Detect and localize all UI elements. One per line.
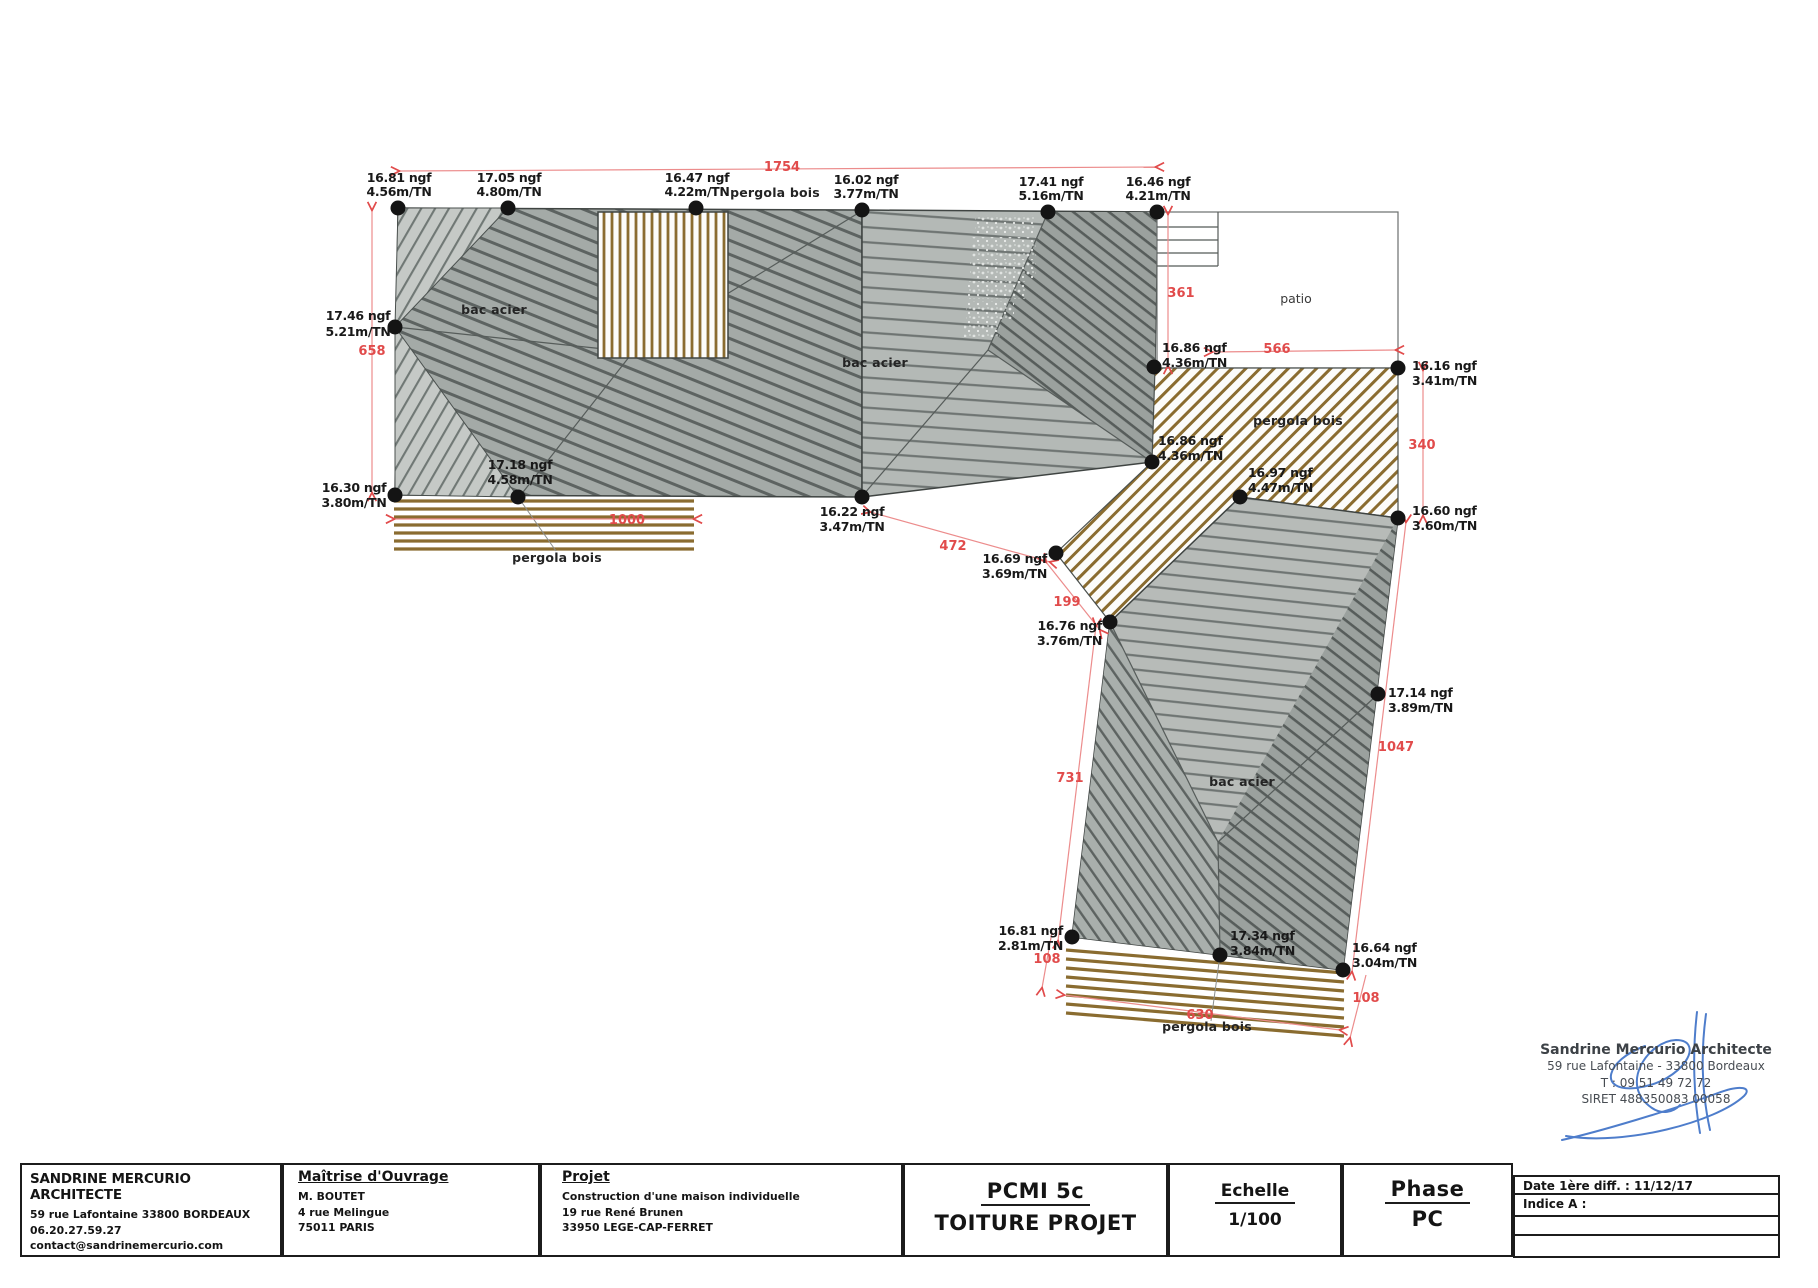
svg-text:16.60 ngf: 16.60 ngf: [1412, 503, 1477, 518]
dim-108-left: 108: [1033, 952, 1060, 967]
svg-text:16.69 ngf: 16.69 ngf: [983, 551, 1048, 566]
stamp-siret: SIRET 488350083 00058: [1522, 1091, 1790, 1108]
svg-text:4.47m/TN: 4.47m/TN: [1248, 480, 1313, 495]
svg-text:16.86 ngf: 16.86 ngf: [1158, 433, 1223, 448]
phase-value: PC: [1344, 1207, 1511, 1231]
svg-text:4.56m/TN: 4.56m/TN: [366, 184, 431, 199]
titleblock-echelle-cell: Echelle 1/100: [1168, 1163, 1342, 1257]
pergola-top-inset: [598, 212, 728, 358]
echelle-value: 1/100: [1170, 1210, 1340, 1230]
elevation-label: 16.30 ngf3.80m/TN: [321, 480, 387, 510]
elevation-label: 16.22 ngf3.47m/TN: [819, 504, 885, 534]
svg-text:16.81 ngf: 16.81 ngf: [367, 170, 432, 185]
elevation-label: 16.60 ngf3.60m/TN: [1412, 503, 1477, 533]
elevation-label: 16.16 ngf3.41m/TN: [1412, 358, 1477, 388]
svg-text:3.84m/TN: 3.84m/TN: [1230, 943, 1295, 958]
svg-text:16.16 ngf: 16.16 ngf: [1412, 358, 1477, 373]
architect-address: 59 rue Lafontaine 33800 BORDEAUX: [30, 1208, 280, 1221]
svg-text:3.41m/TN: 3.41m/TN: [1412, 373, 1477, 388]
svg-text:17.41 ngf: 17.41 ngf: [1019, 174, 1084, 189]
svg-text:16.81 ngf: 16.81 ngf: [999, 923, 1064, 938]
dim-566: 566: [1263, 342, 1290, 357]
revision-empty-row-1: [1515, 1217, 1778, 1236]
svg-text:16.86 ngf: 16.86 ngf: [1162, 340, 1227, 355]
svg-text:16.76 ngf: 16.76 ngf: [1038, 618, 1103, 633]
svg-text:3.80m/TN: 3.80m/TN: [321, 495, 386, 510]
svg-text:4.58m/TN: 4.58m/TN: [487, 472, 552, 487]
elevation-label: 16.81 ngf4.56m/TN: [366, 170, 432, 199]
svg-text:17.34 ngf: 17.34 ngf: [1230, 928, 1295, 943]
roof-middle-wing: [862, 210, 1157, 497]
pergola-bois-label-top: pergola bois: [730, 185, 820, 200]
dim-731: 731: [1056, 771, 1083, 786]
pergola-bottom-left-slats: [394, 501, 694, 549]
elevation-label: 17.05 ngf4.80m/TN: [476, 170, 542, 199]
svg-text:3.04m/TN: 3.04m/TN: [1352, 955, 1417, 970]
svg-text:3.69m/TN: 3.69m/TN: [982, 566, 1047, 581]
elevation-label: 16.02 ngf3.77m/TN: [833, 172, 899, 201]
svg-text:4.22m/TN: 4.22m/TN: [664, 184, 729, 199]
svg-text:4.80m/TN: 4.80m/TN: [476, 184, 541, 199]
svg-text:16.02 ngf: 16.02 ngf: [834, 172, 899, 187]
bac-acier-label-middle: bac acier: [842, 355, 908, 370]
svg-text:17.05 ngf: 17.05 ngf: [477, 170, 542, 185]
elevation-label: 16.69 ngf3.69m/TN: [982, 551, 1048, 581]
pergola-bois-label-bottom: pergola bois: [1162, 1019, 1252, 1034]
dim-199: 199: [1053, 595, 1080, 610]
revision-indice: Indice A :: [1515, 1195, 1778, 1217]
dim-left: 658: [358, 344, 385, 359]
titleblock-phase-cell: Phase PC: [1342, 1163, 1513, 1257]
svg-text:5.16m/TN: 5.16m/TN: [1018, 188, 1083, 203]
svg-text:3.77m/TN: 3.77m/TN: [833, 186, 898, 201]
phase-title: Phase: [1385, 1177, 1471, 1204]
titleblock-architect-cell: SANDRINE MERCURIO ARCHITECTE 59 rue Lafo…: [20, 1163, 282, 1257]
stamp-phone: T : 09 51 49 72 72: [1522, 1075, 1790, 1092]
revision-empty-row-2: [1515, 1236, 1778, 1254]
svg-text:3.47m/TN: 3.47m/TN: [819, 519, 884, 534]
stamp-name: Sandrine Mercurio Architecte: [1522, 1042, 1790, 1058]
svg-text:16.47 ngf: 16.47 ngf: [665, 170, 730, 185]
moa-address1: 4 rue Melingue: [298, 1206, 538, 1219]
elevation-label: 16.81 ngf2.81m/TN: [998, 923, 1064, 953]
svg-text:16.46 ngf: 16.46 ngf: [1126, 174, 1191, 189]
svg-text:16.22 ngf: 16.22 ngf: [820, 504, 885, 519]
elevation-label: 16.97 ngf4.47m/TN: [1248, 465, 1313, 495]
elevation-label: 17.18 ngf4.58m/TN: [487, 457, 553, 487]
architect-phone: 06.20.27.59.27: [30, 1224, 280, 1237]
elevation-label: 17.46 ngf5.21m/TN: [325, 308, 391, 339]
moa-name: M. BOUTET: [298, 1190, 538, 1203]
svg-text:5.21m/TN: 5.21m/TN: [325, 324, 390, 339]
svg-text:16.30 ngf: 16.30 ngf: [322, 480, 387, 495]
doc-name: TOITURE PROJET: [905, 1211, 1166, 1235]
svg-text:17.18 ngf: 17.18 ngf: [488, 457, 553, 472]
titleblock-doc-cell: PCMI 5c TOITURE PROJET: [903, 1163, 1168, 1257]
titleblock-projet-cell: Projet Construction d'une maison individ…: [540, 1163, 903, 1257]
projet-line2: 19 rue René Brunen: [562, 1206, 901, 1219]
architect-name: SANDRINE MERCURIO ARCHITECTE: [30, 1171, 280, 1203]
svg-text:17.14 ngf: 17.14 ngf: [1388, 685, 1453, 700]
echelle-title: Echelle: [1215, 1181, 1296, 1204]
titleblock-revisions-cell: Date 1ère diff. : 11/12/17 Indice A :: [1513, 1175, 1780, 1258]
dim-108-right: 108: [1352, 991, 1379, 1006]
elevation-label: 16.76 ngf3.76m/TN: [1037, 618, 1103, 648]
bac-acier-label-lower: bac acier: [1209, 774, 1275, 789]
moa-address2: 75011 PARIS: [298, 1221, 538, 1234]
dim-361: 361: [1167, 286, 1194, 301]
pergola-bois-label-left: pergola bois: [512, 550, 602, 565]
architect-email: contact@sandrinemercurio.com: [30, 1239, 280, 1252]
projet-title: Projet: [562, 1169, 901, 1185]
architect-stamp: Sandrine Mercurio Architecte 59 rue Lafo…: [1522, 1042, 1790, 1108]
elevation-label: 16.86 ngf4.36m/TN: [1158, 433, 1223, 463]
svg-text:2.81m/TN: 2.81m/TN: [998, 938, 1063, 953]
projet-line3: 33950 LEGE-CAP-FERRET: [562, 1221, 901, 1234]
svg-text:3.60m/TN: 3.60m/TN: [1412, 518, 1477, 533]
svg-text:4.21m/TN: 4.21m/TN: [1125, 188, 1190, 203]
svg-text:3.89m/TN: 3.89m/TN: [1388, 700, 1453, 715]
dim-340: 340: [1408, 438, 1435, 453]
roof-left-wing: [395, 208, 862, 497]
elevation-label: 16.86 ngf4.36m/TN: [1162, 340, 1227, 370]
elevation-label: 16.64 ngf3.04m/TN: [1352, 940, 1417, 970]
elevation-label: 16.47 ngf4.22m/TN: [664, 170, 730, 199]
elevation-label: 17.41 ngf5.16m/TN: [1018, 174, 1084, 203]
svg-text:4.36m/TN: 4.36m/TN: [1162, 355, 1227, 370]
dim-pergola-left: 1000: [609, 513, 645, 528]
svg-text:3.76m/TN: 3.76m/TN: [1037, 633, 1102, 648]
doc-code: PCMI 5c: [981, 1179, 1090, 1206]
elevation-label: 17.34 ngf3.84m/TN: [1230, 928, 1295, 958]
elevation-label: 17.14 ngf3.89m/TN: [1388, 685, 1453, 715]
pergola-bois-label-right: pergola bois: [1253, 413, 1343, 428]
moa-title: Maîtrise d'Ouvrage: [298, 1169, 538, 1185]
dim-top: 1754: [764, 160, 800, 175]
revision-date: Date 1ère diff. : 11/12/17: [1515, 1177, 1778, 1195]
dim-472: 472: [939, 539, 966, 554]
dim-1047: 1047: [1378, 740, 1414, 755]
patio-label: patio: [1280, 291, 1312, 306]
elevation-label: 16.46 ngf4.21m/TN: [1125, 174, 1191, 203]
svg-text:16.64 ngf: 16.64 ngf: [1352, 940, 1417, 955]
stamp-address: 59 rue Lafontaine - 33800 Bordeaux: [1522, 1058, 1790, 1075]
projet-line1: Construction d'une maison individuelle: [562, 1190, 901, 1203]
svg-text:16.97 ngf: 16.97 ngf: [1248, 465, 1313, 480]
bac-acier-label-left: bac acier: [461, 302, 527, 317]
svg-text:17.46 ngf: 17.46 ngf: [326, 308, 391, 323]
titleblock-moa-cell: Maîtrise d'Ouvrage M. BOUTET 4 rue Melin…: [282, 1163, 540, 1257]
svg-text:4.36m/TN: 4.36m/TN: [1158, 448, 1223, 463]
